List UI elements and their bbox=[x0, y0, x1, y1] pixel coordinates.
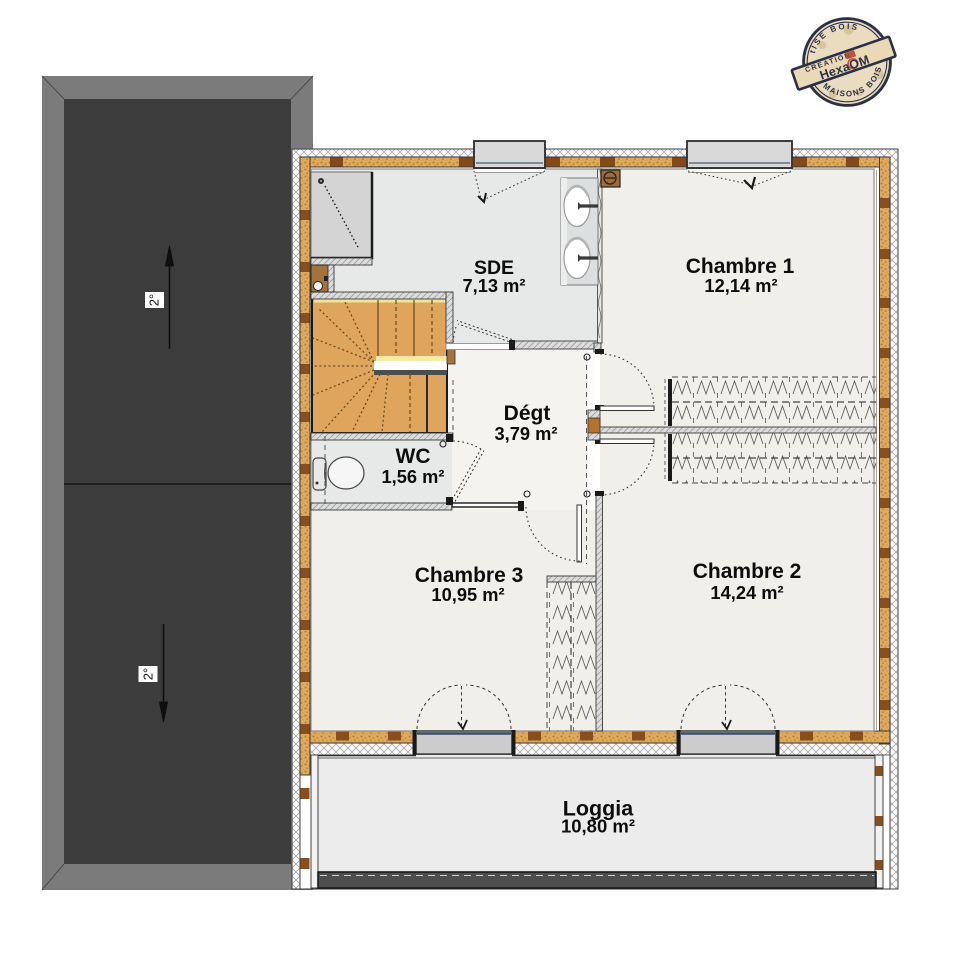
svg-text:1,56 m²: 1,56 m² bbox=[381, 466, 444, 487]
svg-text:Dégt: Dégt bbox=[504, 402, 551, 425]
svg-text:7,13 m²: 7,13 m² bbox=[462, 275, 525, 296]
svg-text:Chambre 2: Chambre 2 bbox=[693, 560, 802, 583]
svg-text:12,14 m²: 12,14 m² bbox=[704, 275, 777, 296]
svg-text:3,79 m²: 3,79 m² bbox=[494, 423, 557, 444]
svg-text:2°: 2° bbox=[141, 668, 156, 680]
svg-text:10,95 m²: 10,95 m² bbox=[431, 584, 504, 605]
svg-text:2°: 2° bbox=[147, 294, 162, 306]
svg-text:WC: WC bbox=[396, 445, 431, 468]
svg-text:14,24 m²: 14,24 m² bbox=[710, 582, 783, 603]
svg-text:10,80 m²: 10,80 m² bbox=[561, 816, 635, 837]
